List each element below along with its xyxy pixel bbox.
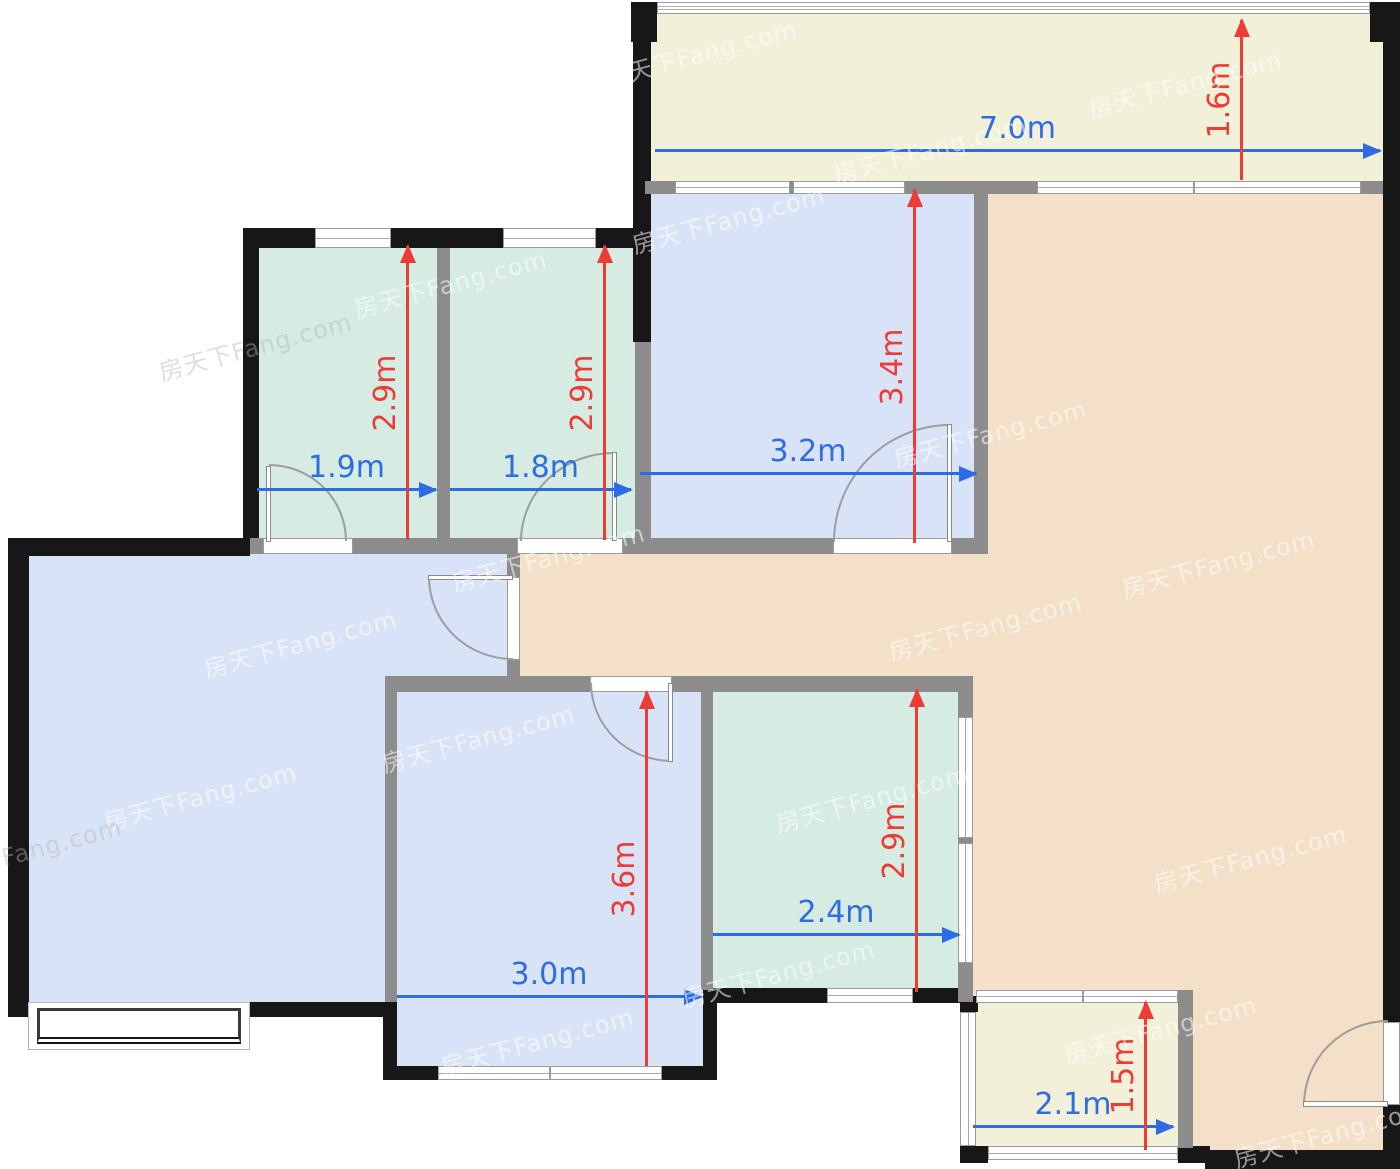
dim-depth-room-top-right: 3.4m	[913, 190, 916, 543]
door-bedroom-bottom-mid-leaf	[668, 683, 673, 762]
bay-window-frame	[37, 1008, 241, 1044]
window-bedroom-top-left	[315, 228, 391, 248]
sliding-panel-green-room-a	[958, 717, 973, 838]
dim-width-room-top-right-arrowhead	[959, 466, 978, 482]
door-bedroom-top-left-leaf	[266, 466, 271, 542]
door-bedroom-top-right-leaf	[947, 424, 952, 542]
dim-depth-room-top-left-arrowhead	[400, 244, 416, 263]
wall-interior	[385, 676, 973, 692]
dim-depth-room-top-mid: 2.9m	[603, 246, 606, 540]
dim-depth-room-bottom-green-arrowhead	[909, 688, 925, 707]
window-balcony-wall-b	[1194, 181, 1361, 194]
dim-width-room-top-right-label: 3.2m	[770, 437, 847, 467]
dim-depth-room-top-mid-arrowhead	[597, 244, 613, 263]
dim-width-balcony-bottom-arrowhead	[1156, 1119, 1175, 1135]
window-bedroom-top-right-b	[793, 181, 905, 194]
wall-exterior	[1383, 2, 1400, 1022]
wall-exterior	[8, 1000, 29, 1017]
balcony-railing-window	[657, 2, 1370, 14]
wall-exterior	[1205, 1150, 1400, 1169]
dim-depth-room-bottom-mid: 3.6m	[645, 692, 648, 1066]
dim-width-room-bottom-green-label: 2.4m	[798, 898, 875, 928]
window-bedroom-bottom-a	[438, 1066, 550, 1080]
wall-exterior	[1178, 1146, 1210, 1163]
window-bedroom-top-right-a	[675, 181, 790, 194]
wall-interior	[385, 692, 397, 1002]
dim-depth-room-top-mid-label: 2.9m	[568, 355, 598, 432]
dim-depth-balcony-bottom-label: 1.5m	[1109, 1038, 1139, 1115]
dim-width-balcony-bottom-label: 2.1m	[1035, 1090, 1112, 1120]
wall-exterior	[248, 1002, 388, 1017]
window-balcony-bottom-top-a	[976, 990, 1083, 1003]
wall-interior	[1178, 990, 1193, 1148]
dim-depth-room-bottom-mid-label: 3.6m	[610, 841, 640, 918]
window-bedroom-bottom-b	[550, 1066, 662, 1080]
sliding-panel-green-room-b	[958, 843, 973, 963]
dim-depth-room-top-left: 2.9m	[406, 246, 409, 540]
wall-exterior	[8, 538, 250, 556]
dim-width-balcony-bottom: 2.1m	[973, 1125, 1173, 1128]
dim-width-room-top-right: 3.2m	[640, 472, 976, 475]
dim-depth-room-bottom-mid-arrowhead	[639, 690, 655, 709]
dim-depth-room-bottom-green: 2.9m	[915, 690, 918, 992]
wall-exterior	[703, 990, 717, 1080]
dim-depth-balcony-top-label: 1.6m	[1205, 62, 1235, 139]
window-balcony-bottom-bottom	[988, 1146, 1178, 1160]
bay-window	[28, 1002, 250, 1050]
dim-depth-room-top-left-label: 2.9m	[371, 355, 401, 432]
dim-width-balcony-top: 7.0m	[655, 149, 1380, 152]
dim-width-room-top-mid-label: 1.8m	[502, 453, 579, 483]
dim-depth-balcony-top: 1.6m	[1240, 20, 1243, 180]
window-bottom-green-room	[827, 988, 913, 1003]
wall-exterior	[633, 2, 651, 342]
wall-interior	[635, 342, 651, 546]
dim-depth-room-top-right-label: 3.4m	[878, 328, 908, 405]
dim-width-balcony-top-label: 7.0m	[979, 114, 1056, 144]
dim-width-room-top-left-label: 1.9m	[308, 453, 385, 483]
dim-width-room-bottom-mid: 3.0m	[397, 995, 701, 998]
dim-width-room-top-mid-arrowhead	[614, 482, 633, 498]
wall-interior	[974, 185, 988, 554]
window-bedroom-top-mid	[503, 228, 596, 248]
wall-exterior	[8, 538, 29, 1017]
wall-exterior	[243, 228, 259, 546]
wall-interior	[437, 248, 450, 546]
dim-depth-room-top-right-arrowhead	[907, 188, 923, 207]
dim-width-room-top-left-arrowhead	[419, 482, 438, 498]
wall-interior	[701, 692, 713, 990]
dim-width-room-bottom-mid-label: 3.0m	[511, 960, 588, 990]
dim-depth-room-bottom-green-label: 2.9m	[880, 803, 910, 880]
wall-exterior	[383, 1066, 440, 1080]
room-balcony-top	[645, 5, 1390, 185]
entry-door-leaf	[1303, 1101, 1388, 1107]
floor-plan-canvas: 7.0m1.9m1.8m3.2m3.0m2.4m2.1m1.6m2.9m2.9m…	[0, 0, 1400, 1169]
room-hallway	[513, 548, 980, 690]
dim-depth-balcony-top-arrowhead	[1234, 18, 1250, 37]
wall-exterior	[960, 1146, 988, 1163]
window-balcony-bottom-top-b	[1083, 990, 1178, 1003]
dim-depth-balcony-bottom: 1.5m	[1144, 1002, 1147, 1150]
dim-width-balcony-top-arrowhead	[1363, 143, 1382, 159]
wall-exterior	[713, 988, 827, 1003]
dim-width-room-bottom-green-arrowhead	[942, 927, 961, 943]
dim-width-room-bottom-green: 2.4m	[713, 933, 959, 936]
dim-width-room-bottom-mid-arrowhead	[684, 989, 703, 1005]
door-living-leaf	[428, 575, 513, 580]
window-balcony-wall-a	[1037, 181, 1194, 194]
room-bottom-green	[706, 685, 966, 997]
dim-width-room-top-left: 1.9m	[257, 488, 436, 491]
dim-depth-balcony-bottom-arrowhead	[1138, 1000, 1154, 1019]
